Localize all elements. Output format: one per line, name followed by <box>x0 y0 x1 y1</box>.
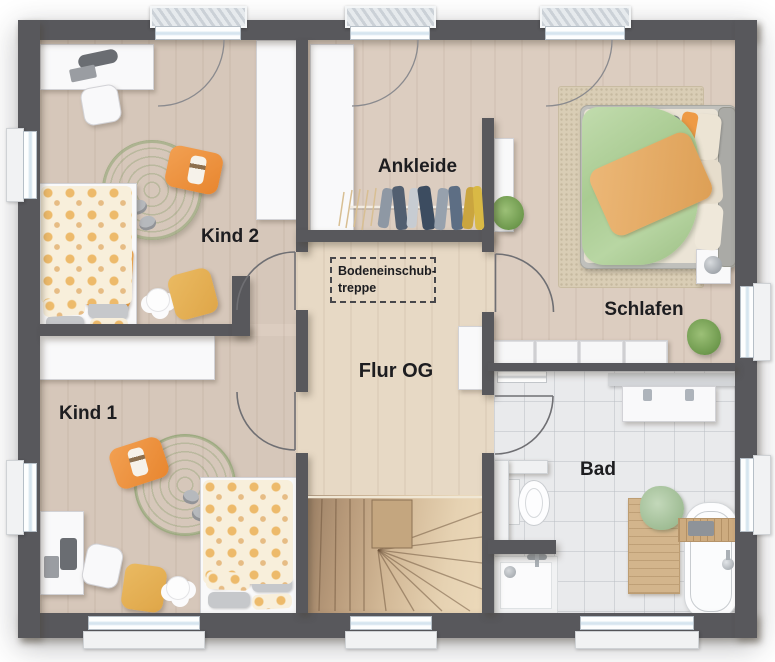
attic-hatch-line1: Bodeneinschub- <box>338 263 428 280</box>
schlafen-pillow <box>694 203 724 251</box>
wall-exterior-left <box>18 20 40 638</box>
roof-window-ankleide-glass <box>350 26 430 40</box>
wall-flur-east-mid <box>482 312 494 395</box>
window-kind1-south-glass <box>88 616 200 630</box>
schlafen-plant <box>687 319 721 355</box>
bad-towel-rail <box>497 371 547 383</box>
room-label-kind2: Kind 2 <box>180 227 280 248</box>
kind1-pillow <box>208 592 250 608</box>
window-kind1-west-glass <box>23 463 37 532</box>
window-kind1-south-sill <box>83 631 205 649</box>
shower-drain <box>504 566 516 578</box>
schlafen-sphere-lamp <box>704 256 722 274</box>
roof-window-ankleide <box>345 6 436 28</box>
kind2-pillow <box>42 297 85 318</box>
kind2-side-table <box>146 288 170 312</box>
roof-window-kind2-glass <box>155 26 241 40</box>
room-label-bad: Bad <box>570 460 626 481</box>
wall-flur-west-mid <box>296 310 308 392</box>
wall-flur-west-upper <box>296 40 308 252</box>
wall-flur-west-lower <box>296 453 308 613</box>
kind1-laptop <box>44 556 59 578</box>
window-schlafen-east <box>753 283 771 361</box>
wall-ankleide-south <box>296 230 494 242</box>
wall-kind2-door-stub <box>232 276 250 336</box>
kind2-bed-duvet <box>41 186 132 304</box>
window-bad-south-glass <box>580 616 694 630</box>
room-label-ankleide: Ankleide <box>360 157 475 178</box>
kind1-pillow <box>206 571 251 591</box>
kind1-bed-duvet <box>203 480 293 584</box>
kind1-cushion <box>120 562 168 613</box>
floorplan-upper-floor: Kind 2 Kind 1 Ankleide Schlafen Bad Flur… <box>0 0 775 662</box>
room-label-schlafen: Schlafen <box>588 300 700 321</box>
roof-window-schlafen <box>540 6 631 28</box>
staircase <box>308 495 482 613</box>
toilet-seat <box>525 488 543 518</box>
toilet-niche-partition-side <box>494 460 509 550</box>
room-label-flur-og: Flur OG <box>340 360 452 382</box>
kind1-side-table <box>166 576 190 600</box>
window-bad-south-sill <box>575 631 699 649</box>
bad-faucet <box>685 389 694 401</box>
window-kind2-west <box>6 128 24 202</box>
wall-schlafen-bad <box>488 363 735 371</box>
window-kind2-west-glass <box>23 131 37 199</box>
sideboard-door <box>536 341 579 364</box>
schlafen-sideboard <box>490 340 668 365</box>
window-stair-south-sill <box>345 631 437 649</box>
wall-kind1-kind2 <box>40 324 250 336</box>
attic-hatch-line2: treppe <box>338 280 428 297</box>
roof-window-kind2 <box>150 6 247 28</box>
kind1-monitor <box>60 538 77 570</box>
bathtub-caddy-items <box>688 521 714 536</box>
wall-ankleide-east <box>482 118 494 252</box>
window-kind1-west <box>6 460 24 535</box>
bad-shower-tray <box>494 556 558 615</box>
ankleide-cabinet-left <box>310 44 354 232</box>
attic-hatch-annotation: Bodeneinschub- treppe <box>330 257 436 303</box>
window-stair-south-glass <box>350 616 432 630</box>
window-bad-east <box>753 455 771 535</box>
wall-bad-shower-stub <box>488 540 556 554</box>
bad-double-sink-vanity <box>622 386 716 422</box>
bad-faucet <box>643 389 652 401</box>
kind2-desk-chair <box>79 83 123 127</box>
wall-flur-east-lower <box>482 453 494 613</box>
sideboard-door <box>491 341 534 364</box>
roof-window-schlafen-glass <box>545 26 625 40</box>
bad-vanity-ledge <box>608 373 737 386</box>
kind1-wardrobe <box>37 335 215 380</box>
window-schlafen-east-glass <box>740 286 754 358</box>
kind1-pillow <box>252 593 293 610</box>
ankleide-plant <box>492 196 524 230</box>
sideboard-door <box>625 341 668 364</box>
sideboard-door <box>580 341 623 364</box>
toilet-bowl <box>518 480 550 526</box>
room-label-kind1: Kind 1 <box>38 404 138 425</box>
window-bad-east-glass <box>740 458 754 532</box>
bathtub-faucet-handle <box>726 550 730 560</box>
